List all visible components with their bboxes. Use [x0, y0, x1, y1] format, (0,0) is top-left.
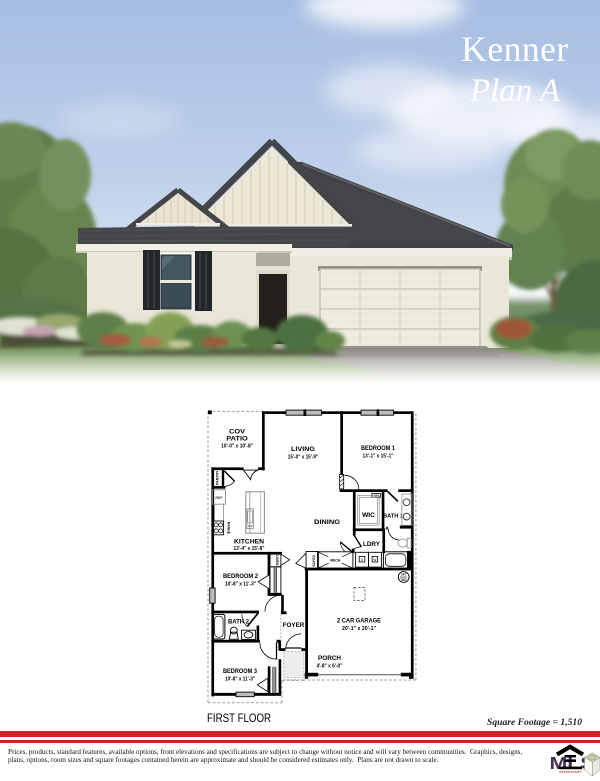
svg-text:MECH: MECH	[330, 559, 341, 563]
svg-text:LDRY: LDRY	[363, 542, 380, 548]
svg-text:DW: DW	[248, 524, 253, 528]
svg-text:COATS: COATS	[311, 555, 315, 567]
svg-text:PORCH: PORCH	[318, 655, 341, 662]
svg-text:KITCHEN: KITCHEN	[234, 539, 264, 546]
svg-text:WIC: WIC	[362, 513, 376, 519]
svg-text:COV: COV	[229, 429, 246, 436]
svg-text:LINEN: LINEN	[275, 555, 279, 566]
svg-text:10'-8" x 11'-3": 10'-8" x 11'-3"	[225, 582, 257, 588]
svg-text:PANTRY: PANTRY	[215, 470, 219, 485]
svg-text:W: W	[373, 558, 377, 562]
svg-text:13'-1" x 15'-1": 13'-1" x 15'-1"	[363, 454, 395, 460]
svg-text:4'-8" x 6'-0": 4'-8" x 6'-0"	[317, 664, 344, 670]
svg-text:2 CAR GARAGE: 2 CAR GARAGE	[337, 618, 382, 625]
svg-text:D: D	[361, 558, 364, 562]
svg-text:15'-0" x 15'-9": 15'-0" x 15'-9"	[288, 455, 319, 461]
svg-text:PATIO: PATIO	[226, 436, 248, 443]
svg-text:BEDROOM 2: BEDROOM 2	[223, 573, 258, 580]
svg-text:BEDROOM 3: BEDROOM 3	[223, 668, 257, 675]
svg-text:20'-1" x 20'-1": 20'-1" x 20'-1"	[342, 626, 377, 632]
svg-text:DINING: DINING	[314, 519, 340, 526]
svg-text:FOYER: FOYER	[283, 622, 305, 629]
svg-text:RANGE: RANGE	[226, 522, 230, 535]
svg-text:LIVING: LIVING	[291, 446, 315, 453]
svg-text:REF: REF	[215, 496, 223, 500]
svg-text:BATH 1: BATH 1	[383, 514, 404, 520]
svg-text:10'-0" x 10'-8": 10'-0" x 10'-8"	[221, 444, 254, 450]
svg-text:13'-4" x 15'-8": 13'-4" x 15'-8"	[234, 546, 266, 552]
svg-text:OPPORTUNITY: OPPORTUNITY	[559, 770, 582, 774]
svg-text:BATH 2: BATH 2	[228, 619, 250, 626]
svg-text:10'-8" x 11'-3": 10'-8" x 11'-3"	[225, 677, 256, 683]
svg-text:VEH: VEH	[401, 578, 406, 582]
svg-text:BEDROOM 1: BEDROOM 1	[361, 445, 395, 452]
